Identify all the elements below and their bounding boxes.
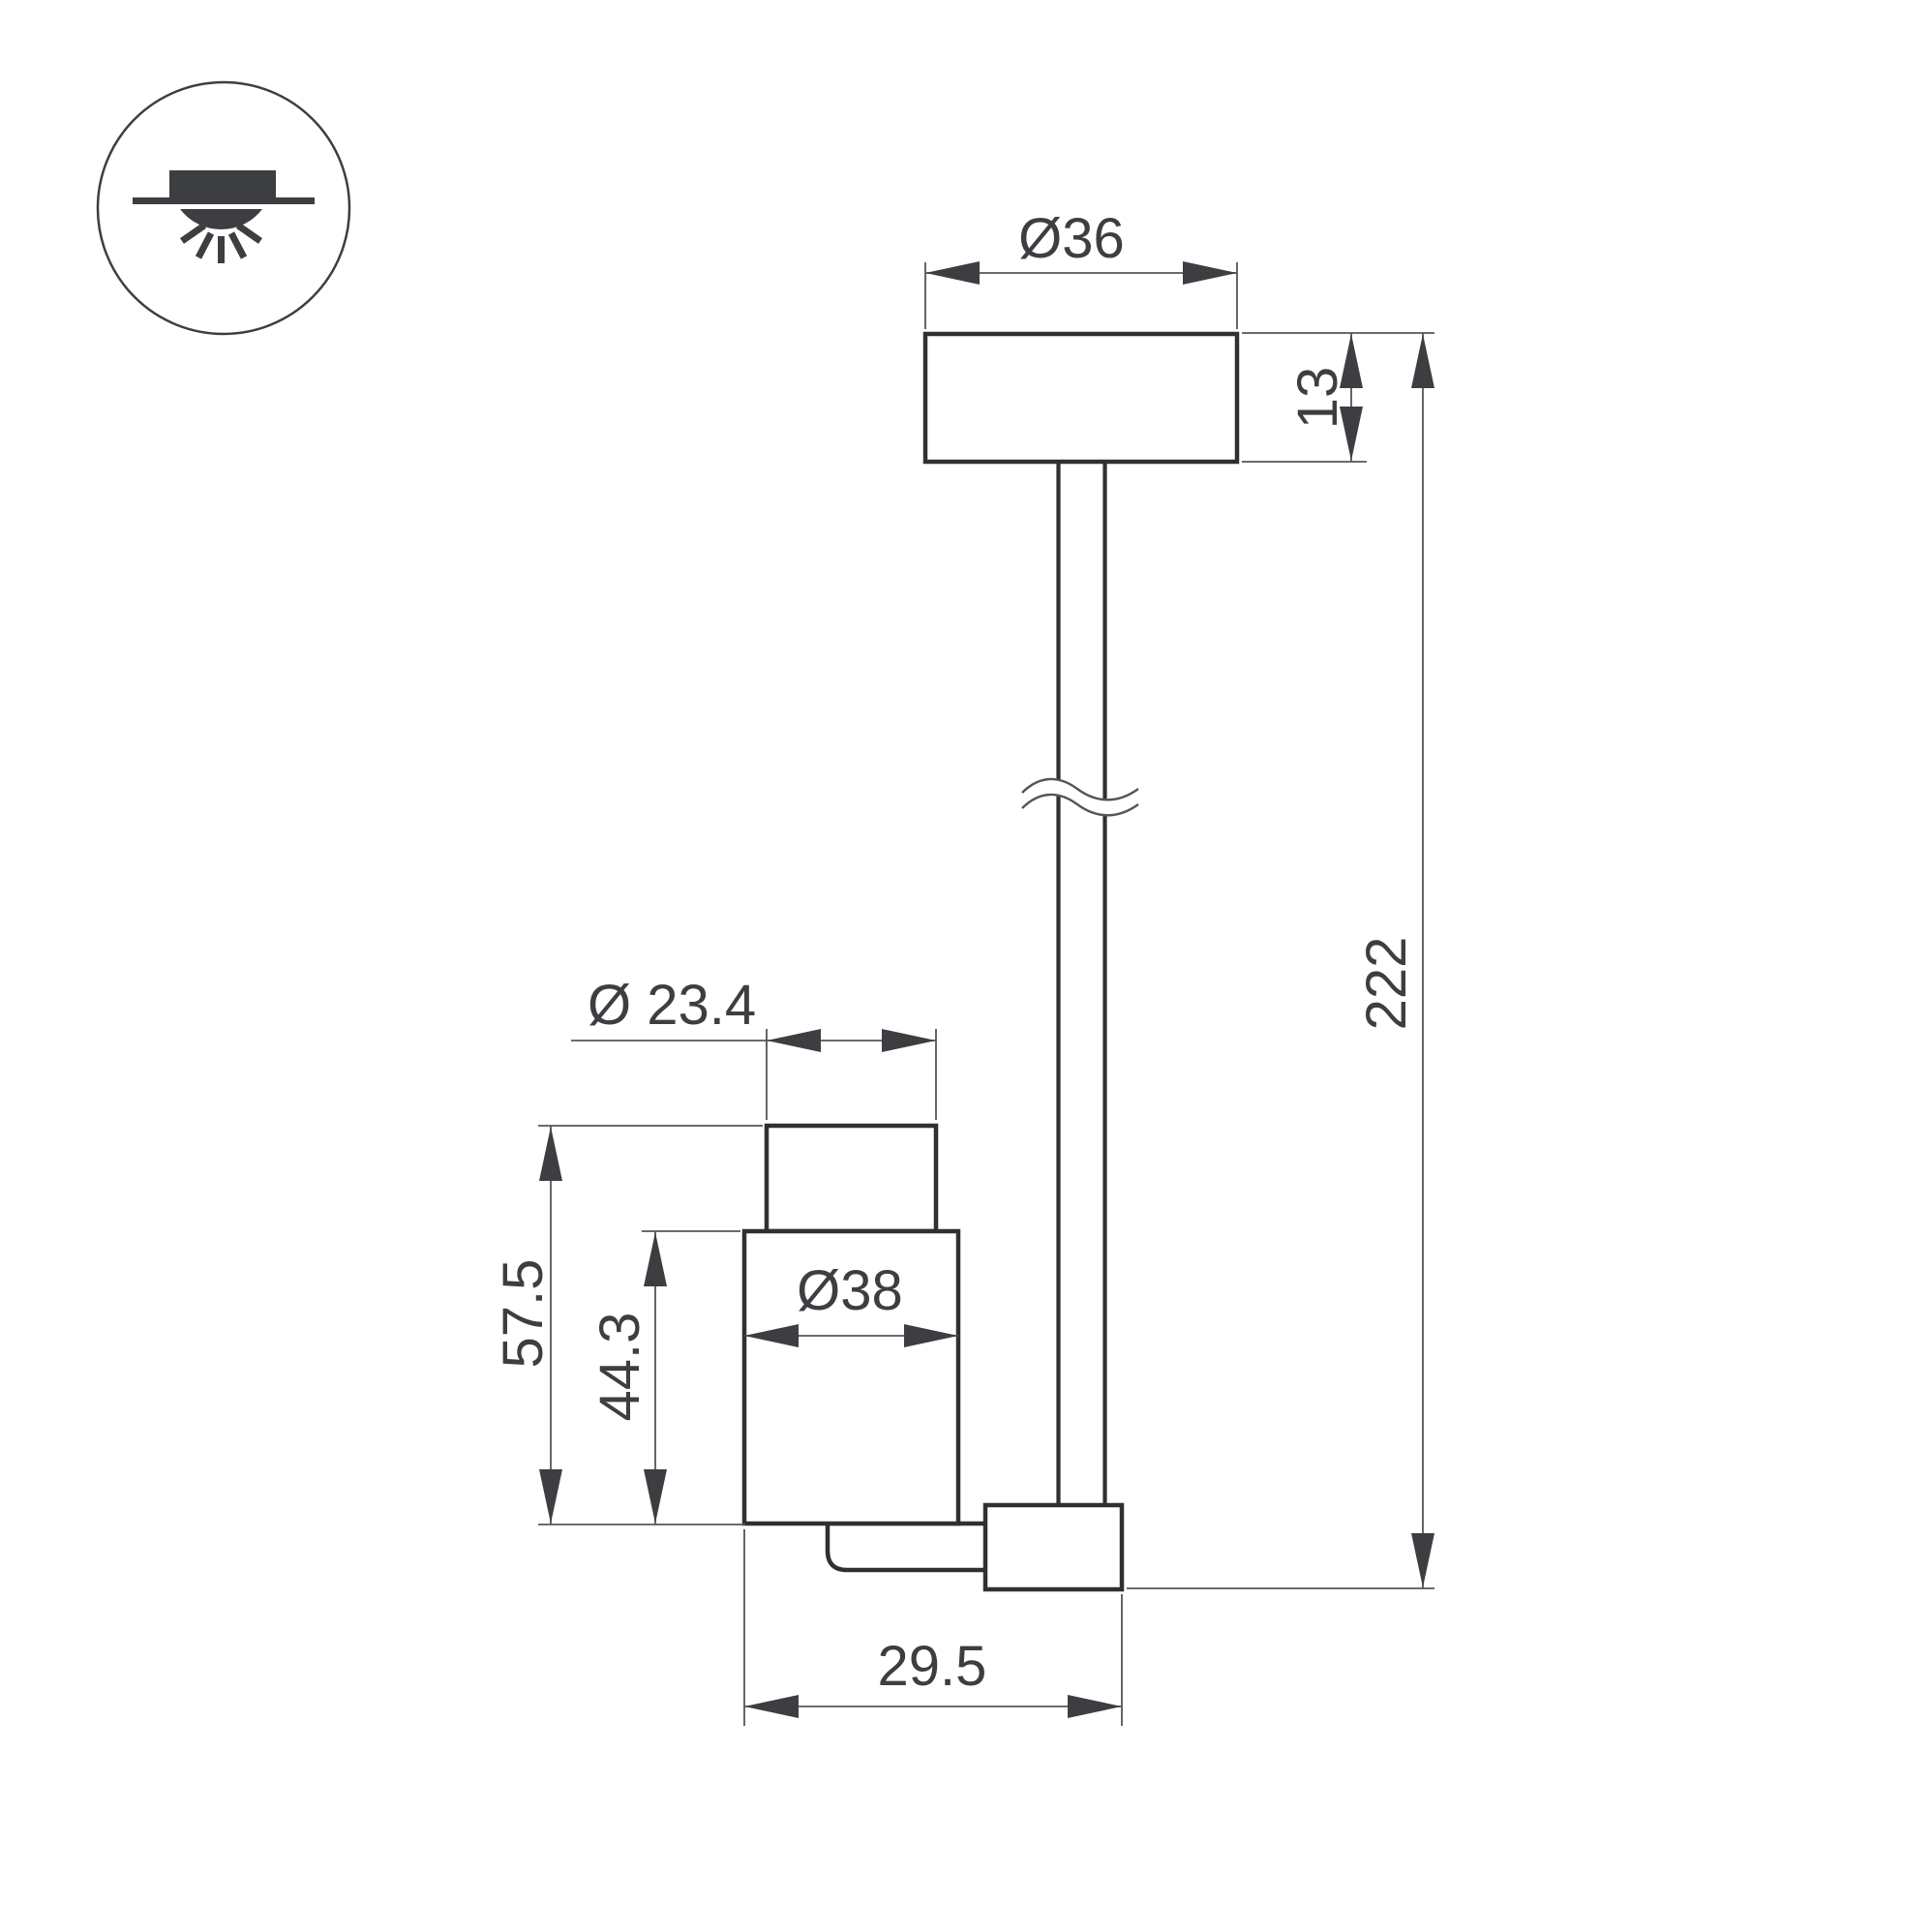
dim-total-length: 222 — [1127, 333, 1434, 1588]
suspension-rod — [1059, 462, 1105, 1505]
icon-circle — [98, 82, 349, 334]
dimension-drawing: Ø36 13 222 Ø 23.4 — [0, 0, 1932, 1932]
canopy-height-label: 13 — [1286, 367, 1349, 430]
icon-fixture-box — [169, 170, 276, 198]
surface-mounted-downlight-icon — [98, 82, 349, 334]
dim-head-body-height: 44.3 — [589, 1231, 740, 1524]
dim-canopy-diameter: Ø36 — [925, 207, 1237, 329]
rod-end-block — [985, 1505, 1122, 1589]
total-length-label: 222 — [1355, 937, 1418, 1031]
spot-head-top-cylinder — [767, 1126, 936, 1231]
head-top-diameter-label: Ø 23.4 — [588, 974, 756, 1037]
ceiling-canopy — [925, 334, 1237, 462]
head-body-height-label: 44.3 — [589, 1313, 651, 1422]
head-depth-label: 29.5 — [878, 1635, 987, 1698]
drawing-page: Ø36 13 222 Ø 23.4 — [0, 0, 1932, 1932]
icon-light-dome — [180, 209, 262, 229]
head-total-height-label: 57.5 — [492, 1259, 555, 1369]
icon-ceiling-line — [133, 197, 315, 204]
fixture-outline — [744, 334, 1237, 1589]
rod-break-icon — [1022, 779, 1138, 815]
elbow-arm — [828, 1524, 989, 1570]
dim-head-top-diameter: Ø 23.4 — [571, 974, 936, 1120]
dim-canopy-height: 13 — [1242, 333, 1434, 462]
icon-light-rays — [182, 226, 260, 263]
head-body-diameter-label: Ø38 — [797, 1259, 903, 1322]
canopy-diameter-label: Ø36 — [1018, 207, 1125, 270]
